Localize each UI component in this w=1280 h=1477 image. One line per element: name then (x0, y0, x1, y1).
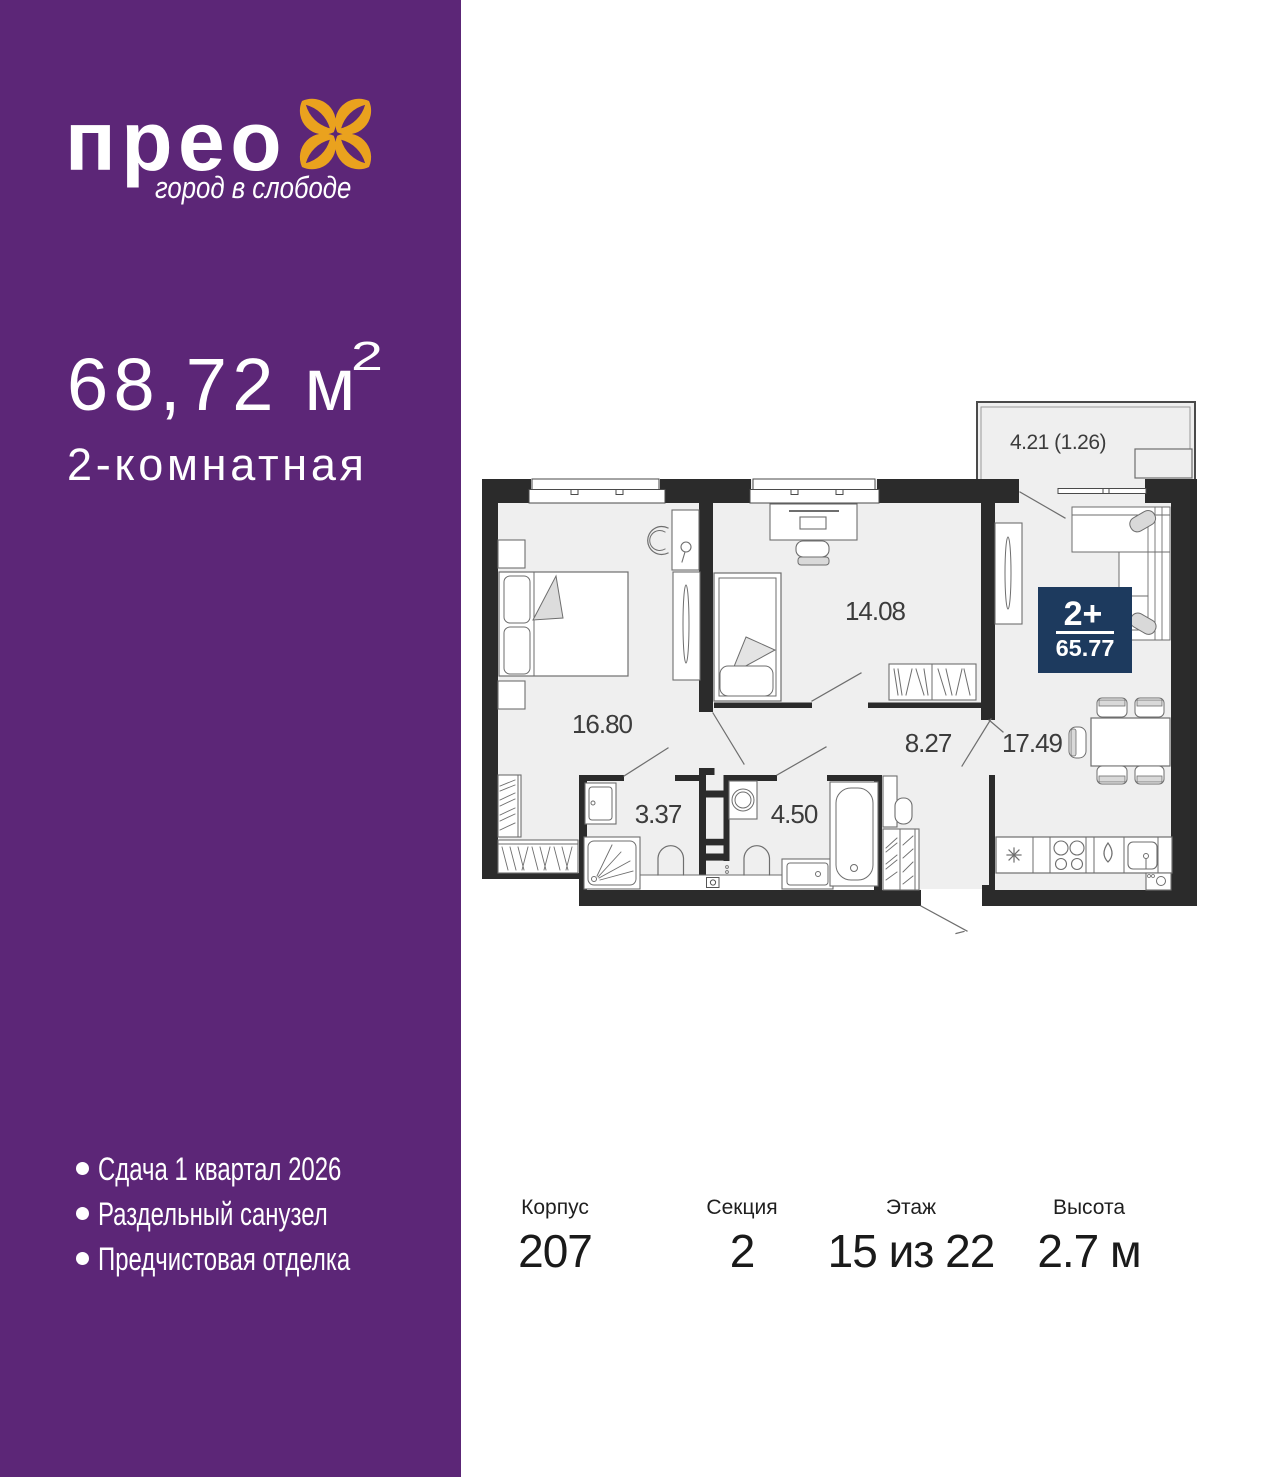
svg-text:16.80: 16.80 (572, 709, 633, 739)
svg-text:3.37: 3.37 (635, 799, 682, 829)
svg-text:65.77: 65.77 (1056, 635, 1115, 661)
svg-text:4.50: 4.50 (771, 799, 818, 829)
svg-text:8.27: 8.27 (905, 728, 952, 758)
svg-text:4.21 (1.26): 4.21 (1.26) (1010, 431, 1106, 454)
svg-text:17.49: 17.49 (1002, 728, 1063, 758)
svg-text:14.08: 14.08 (845, 596, 906, 626)
svg-text:2+: 2+ (1064, 595, 1103, 633)
